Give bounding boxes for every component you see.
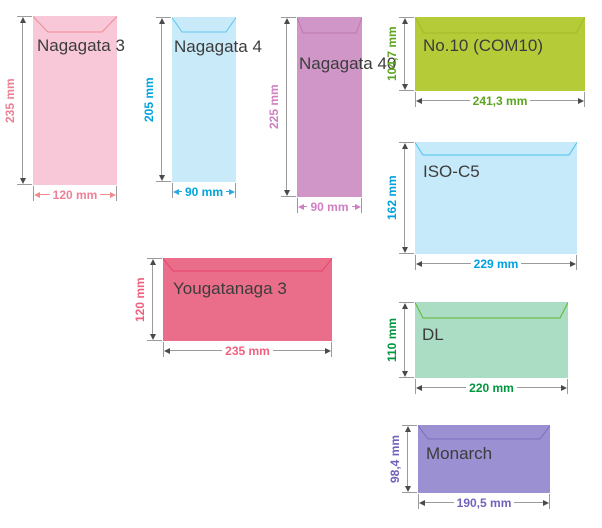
height-dimension-line — [404, 24, 405, 84]
height-arrow — [401, 143, 408, 253]
width-tick-right — [584, 92, 585, 107]
width-dimension-label: 90 mm — [182, 185, 226, 199]
envelope-label: Nagagata 4 — [174, 37, 262, 57]
height-tick-bottom — [399, 90, 414, 91]
height-dimension-label: 225 mm — [266, 17, 282, 197]
envelope-flap — [415, 17, 585, 35]
width-tick-right — [567, 379, 568, 394]
height-arrow — [404, 426, 411, 492]
width-dimension-line — [273, 350, 325, 351]
width-dimension-line — [425, 502, 454, 503]
arrowhead-down-icon — [402, 371, 408, 377]
envelope-label: DL — [422, 325, 444, 345]
arrowhead-down-icon — [20, 178, 26, 184]
envelope-label: Monarch — [426, 444, 492, 464]
arrowhead-right-icon — [355, 204, 361, 210]
height-dimension-label: 110 mm — [384, 302, 400, 378]
envelope-label: No.10 (COM10) — [423, 36, 543, 56]
width-dimension-label: 220 mm — [466, 381, 517, 395]
height-dimension-line — [407, 432, 408, 486]
height-arrow — [19, 17, 26, 184]
height-tick-bottom — [17, 184, 32, 185]
envelope-flap — [33, 16, 117, 34]
height-dimension-label: 98,4 mm — [387, 425, 403, 493]
width-tick-right — [116, 186, 117, 201]
envelope-label: Nagagata 40 — [299, 54, 396, 74]
width-dimension-line — [170, 350, 222, 351]
arrowhead-right-icon — [229, 189, 235, 195]
width-arrow: 190,5 mm — [419, 496, 549, 509]
width-tick-right — [576, 255, 577, 270]
height-arrow — [401, 303, 408, 377]
envelope-flap — [418, 425, 550, 441]
width-dimension-line — [530, 100, 578, 101]
envelope-label: ISO-C5 — [423, 162, 480, 182]
arrowhead-right-icon — [543, 500, 549, 506]
arrowhead-down-icon — [402, 84, 408, 90]
arrowhead-right-icon — [325, 348, 331, 354]
width-dimension-label: 235 mm — [222, 344, 273, 358]
arrowhead-down-icon — [402, 247, 408, 253]
height-arrow — [283, 18, 290, 196]
arrowhead-down-icon — [405, 486, 411, 492]
height-dimension-line — [404, 309, 405, 371]
envelope-body — [415, 142, 577, 254]
arrowhead-down-icon — [284, 190, 290, 196]
arrowhead-right-icon — [570, 261, 576, 267]
arrowhead-right-icon — [578, 98, 584, 104]
envelope-diagram: Nagagata 3235 mm120 mmNagagata 4205 mm90… — [0, 0, 602, 528]
width-dimension-line — [517, 387, 561, 388]
width-dimension-line — [40, 194, 50, 195]
envelope-flap — [172, 17, 236, 34]
height-dimension-line — [404, 149, 405, 247]
width-dimension-line — [100, 194, 110, 195]
width-dimension-line — [422, 263, 471, 264]
width-arrow: 229 mm — [416, 257, 576, 270]
height-dimension-label: 235 mm — [2, 16, 18, 185]
envelope-label: Nagagata 3 — [37, 36, 125, 56]
width-dimension-line — [521, 263, 570, 264]
width-dimension-label: 120 mm — [50, 188, 101, 202]
width-tick-right — [549, 494, 550, 509]
envelope-flap — [415, 302, 568, 320]
arrowhead-down-icon — [159, 175, 165, 181]
height-dimension-label: 162 mm — [384, 142, 400, 254]
width-dimension-line — [422, 100, 470, 101]
height-dimension-line — [161, 24, 162, 175]
envelope-label: Yougatanaga 3 — [173, 279, 287, 299]
width-dimension-label: 241,3 mm — [470, 94, 531, 108]
height-dimension-line — [286, 24, 287, 190]
height-tick-bottom — [399, 377, 414, 378]
width-arrow: 90 mm — [298, 200, 361, 213]
width-dimension-line — [514, 502, 543, 503]
height-tick-bottom — [147, 340, 162, 341]
width-arrow: 241,3 mm — [416, 94, 584, 107]
height-arrow — [401, 18, 408, 90]
width-arrow: 235 mm — [164, 344, 331, 357]
width-dimension-label: 190,5 mm — [454, 496, 515, 510]
height-tick-bottom — [156, 181, 171, 182]
height-dimension-label: 104,7 mm — [384, 17, 400, 91]
height-dimension-label: 120 mm — [132, 258, 148, 341]
height-tick-bottom — [402, 492, 417, 493]
arrowhead-right-icon — [110, 192, 116, 198]
width-dimension-label: 229 mm — [471, 257, 522, 271]
width-arrow: 90 mm — [173, 185, 235, 198]
width-tick-right — [361, 198, 362, 213]
width-arrow: 220 mm — [416, 381, 567, 394]
height-arrow — [149, 259, 156, 340]
height-dimension-line — [152, 265, 153, 334]
width-tick-right — [331, 342, 332, 357]
width-tick-right — [235, 183, 236, 198]
arrowhead-down-icon — [150, 334, 156, 340]
envelope-body — [297, 17, 362, 197]
envelope-flap — [415, 142, 577, 157]
height-tick-bottom — [281, 196, 296, 197]
width-dimension-line — [422, 387, 466, 388]
height-dimension-line — [22, 23, 23, 178]
height-tick-bottom — [399, 253, 414, 254]
height-arrow — [158, 18, 165, 181]
envelope-flap — [163, 258, 332, 273]
width-arrow: 120 mm — [34, 188, 116, 201]
envelope-flap — [297, 17, 362, 35]
width-dimension-label: 90 mm — [307, 200, 351, 214]
arrowhead-right-icon — [561, 385, 567, 391]
height-dimension-label: 205 mm — [141, 17, 157, 182]
